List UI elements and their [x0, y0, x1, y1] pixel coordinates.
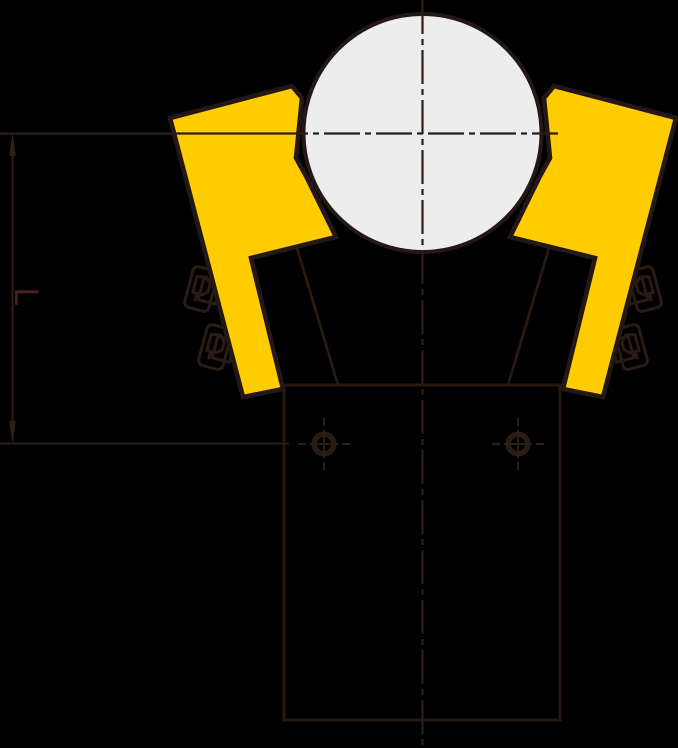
mounting-hole-right: [492, 418, 544, 470]
clamp-body-edge-right: [508, 248, 549, 385]
mounting-hole-left: [298, 418, 350, 470]
drawing-canvas: L: [0, 0, 678, 748]
clamp-drawing: L: [0, 0, 678, 748]
clamp-body-edge-left: [297, 248, 338, 385]
dimension-arrow-top: [9, 133, 16, 156]
dimension-label: L: [7, 287, 45, 305]
dimension-arrow-bottom: [9, 421, 16, 444]
